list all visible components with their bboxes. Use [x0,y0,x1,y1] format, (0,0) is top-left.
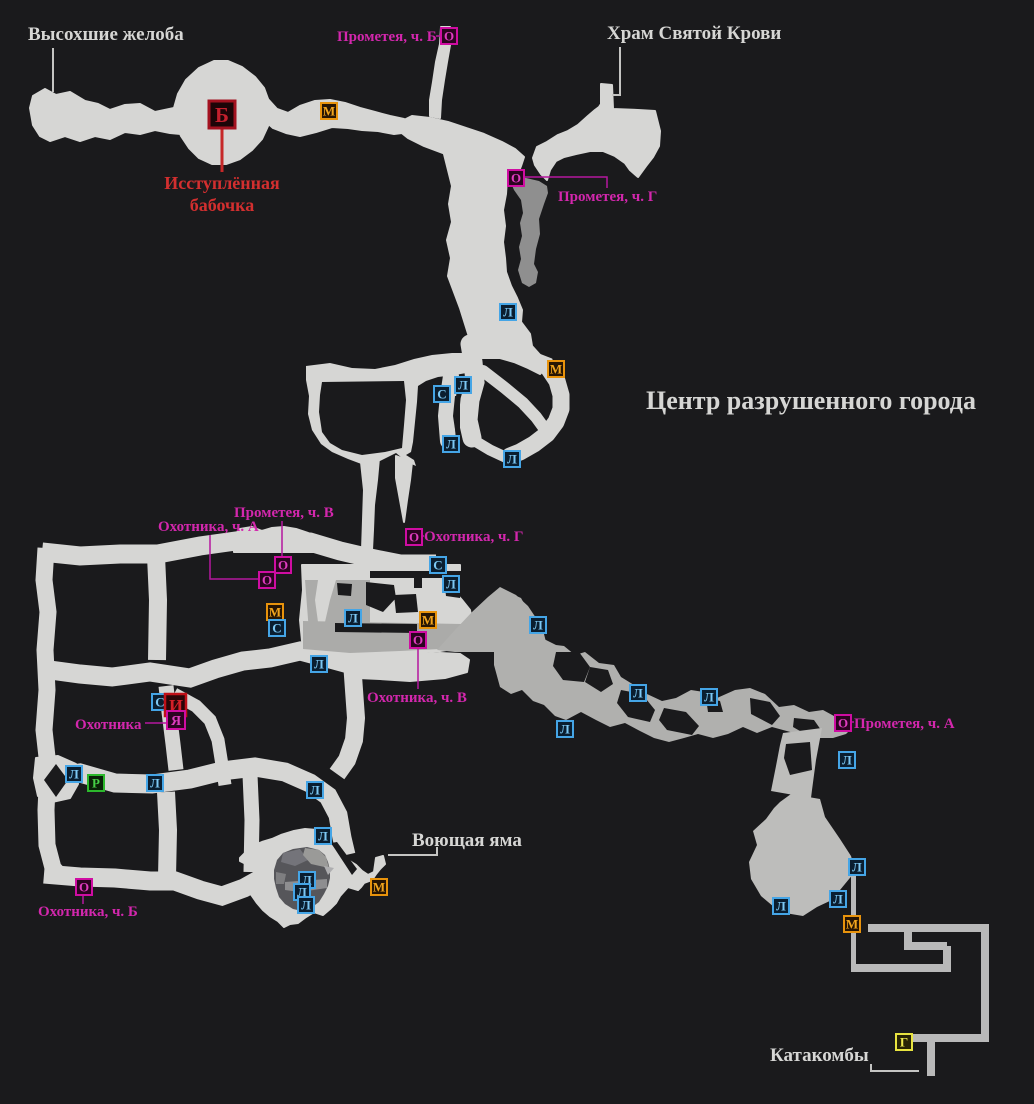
svg-text:Л: Л [533,618,543,633]
svg-text:Центр разрушенного города: Центр разрушенного города [646,386,976,415]
svg-text:Л: Л [446,437,456,452]
svg-text:С: С [272,621,281,636]
svg-text:О: О [278,558,288,573]
svg-text:О: О [79,880,89,895]
svg-text:бабочка: бабочка [190,195,255,215]
svg-text:М: М [373,880,385,895]
svg-text:М: М [846,917,858,932]
svg-text:Воющая яма: Воющая яма [412,830,522,851]
svg-text:Охотника, ч. В: Охотника, ч. В [367,690,467,706]
svg-text:Л: Л [503,305,513,320]
svg-text:С: С [155,695,164,710]
svg-text:Прометея, ч. Г: Прометея, ч. Г [558,189,657,205]
svg-text:Л: Л [507,452,517,467]
svg-text:Исступлённая: Исступлённая [164,173,280,193]
svg-text:Прометея, ч. А: Прометея, ч. А [854,716,955,732]
svg-text:Л: Л [310,783,320,798]
svg-text:Л: Л [776,899,786,914]
svg-text:О: О [413,633,423,648]
svg-text:Прометея, ч. Б: Прометея, ч. Б [337,29,437,45]
svg-text:Л: Л [314,657,324,672]
svg-text:М: М [550,362,562,377]
svg-text:Р: Р [92,776,100,791]
svg-text:Высохшие желоба: Высохшие желоба [28,24,184,45]
svg-text:Л: Л [560,722,570,737]
svg-text:Б: Б [215,103,229,127]
svg-text:Охотника, ч. Г: Охотника, ч. Г [424,529,523,545]
svg-text:Л: Л [318,829,328,844]
svg-text:Л: Л [458,378,468,393]
svg-text:М: М [422,613,434,628]
svg-text:Храм Святой Крови: Храм Святой Крови [607,23,781,44]
svg-text:М: М [323,104,335,119]
svg-text:Я: Я [171,714,181,729]
svg-text:Охотника, ч. А: Охотника, ч. А [158,519,259,535]
svg-text:Л: Л [852,860,862,875]
svg-text:Л: Л [301,898,311,913]
svg-text:Катакомбы: Катакомбы [770,1045,869,1066]
svg-text:Охотника, ч. Б: Охотника, ч. Б [38,904,138,920]
svg-text:Л: Л [446,577,456,592]
svg-text:О: О [838,716,848,731]
svg-text:С: С [433,558,442,573]
svg-text:О: О [444,29,454,44]
svg-text:О: О [511,171,521,186]
svg-text:О: О [262,573,272,588]
svg-text:М: М [269,605,281,620]
svg-text:Л: Л [842,753,852,768]
svg-text:Г: Г [900,1035,908,1050]
svg-text:О: О [409,530,419,545]
svg-text:Л: Л [704,690,714,705]
svg-text:Охотника: Охотника [75,717,142,733]
svg-text:Л: Л [833,892,843,907]
svg-text:С: С [437,387,446,402]
svg-text:Л: Л [633,686,643,701]
svg-text:Л: Л [348,611,358,626]
svg-text:Л: Л [150,776,160,791]
svg-text:Л: Л [69,767,79,782]
